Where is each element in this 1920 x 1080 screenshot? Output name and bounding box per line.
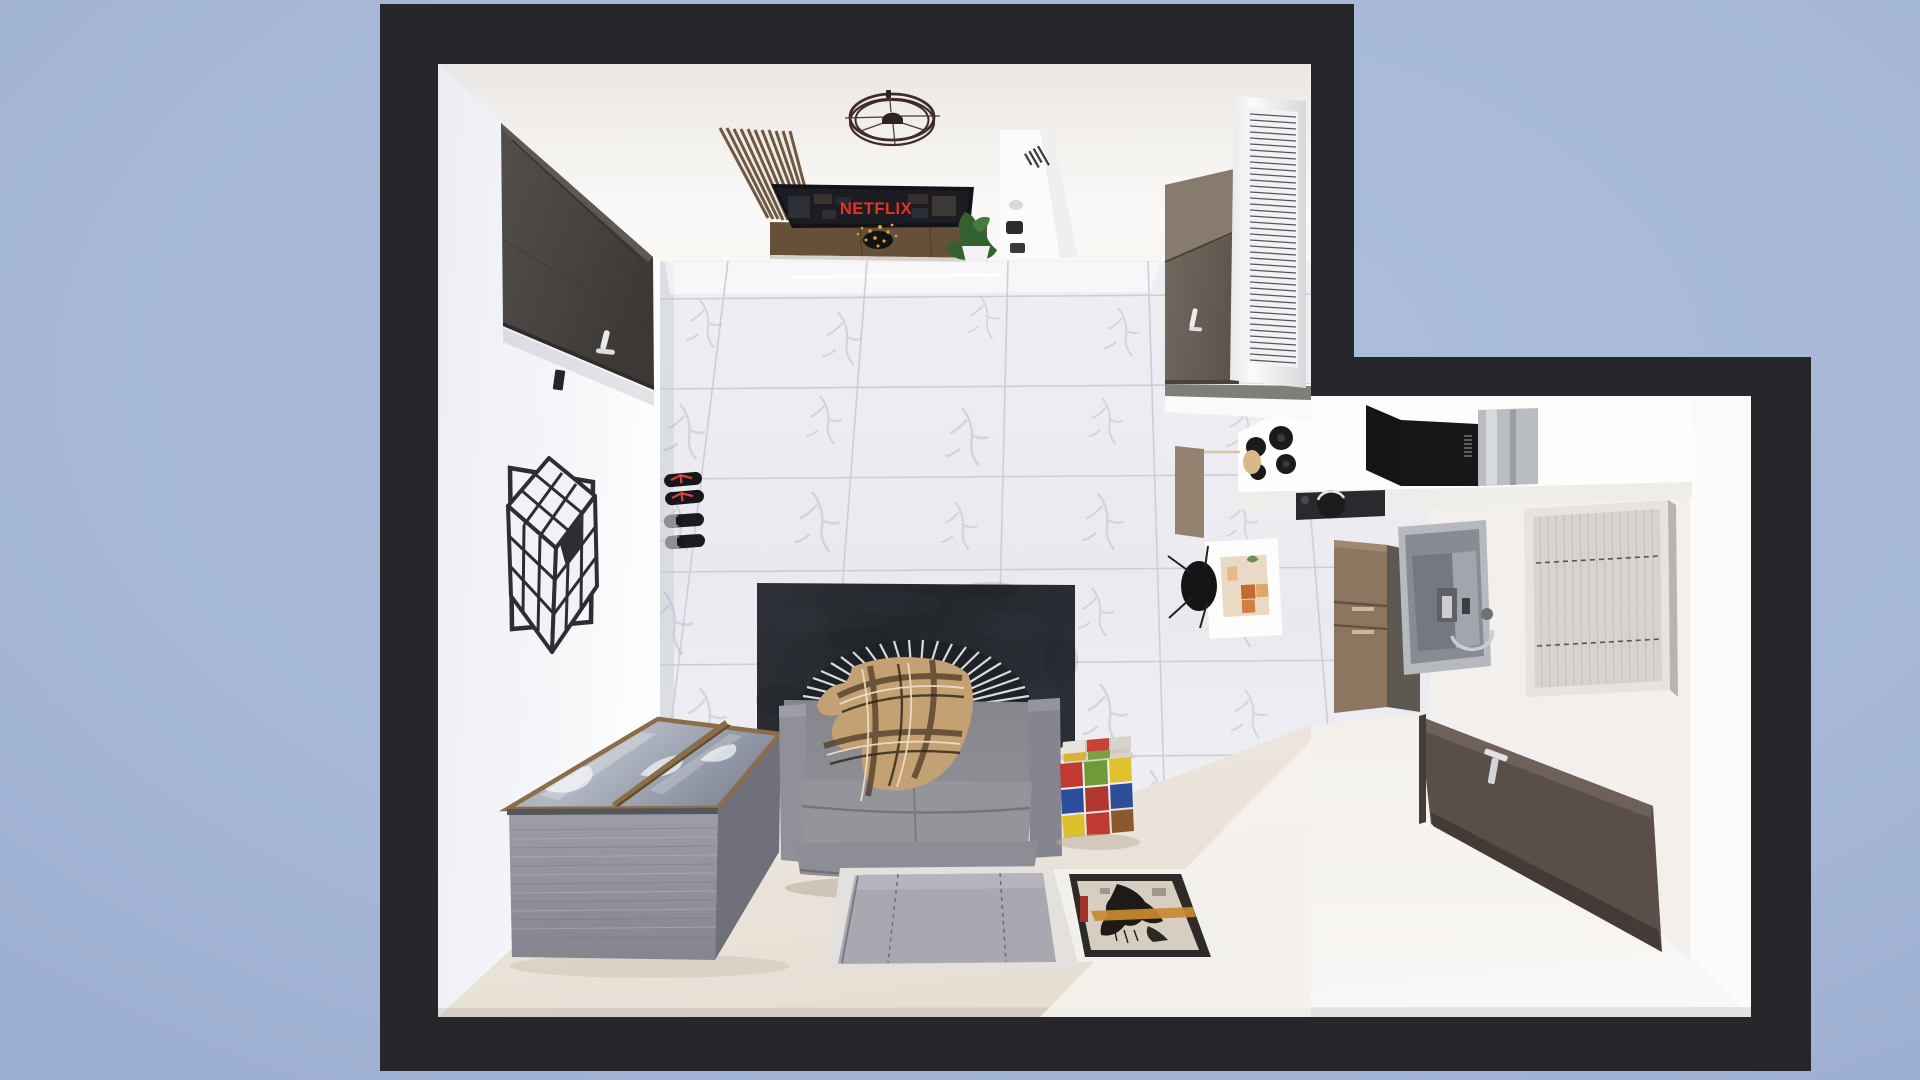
svg-text:NETFLIX: NETFLIX (840, 200, 912, 218)
